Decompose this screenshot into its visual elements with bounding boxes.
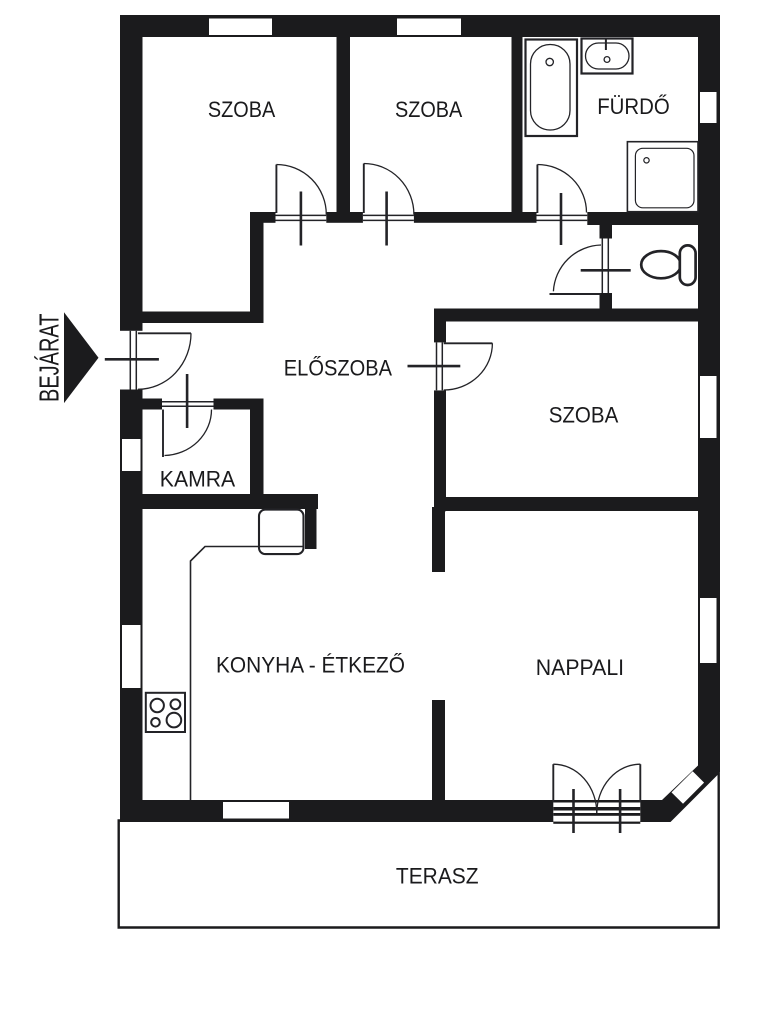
svg-text:SZOBA: SZOBA	[549, 403, 619, 428]
svg-text:SZOBA: SZOBA	[208, 97, 275, 122]
svg-text:BEJÁRAT: BEJÁRAT	[34, 314, 65, 403]
svg-text:KONYHA - ÉTKEZŐ: KONYHA - ÉTKEZŐ	[216, 653, 405, 678]
svg-text:NAPPALI: NAPPALI	[536, 655, 624, 680]
svg-text:KAMRA: KAMRA	[160, 467, 235, 492]
svg-text:SZOBA: SZOBA	[395, 97, 462, 122]
svg-text:ELŐSZOBA: ELŐSZOBA	[284, 356, 392, 381]
svg-text:FÜRDŐ: FÜRDŐ	[597, 94, 670, 119]
svg-text:TERASZ: TERASZ	[396, 864, 479, 889]
